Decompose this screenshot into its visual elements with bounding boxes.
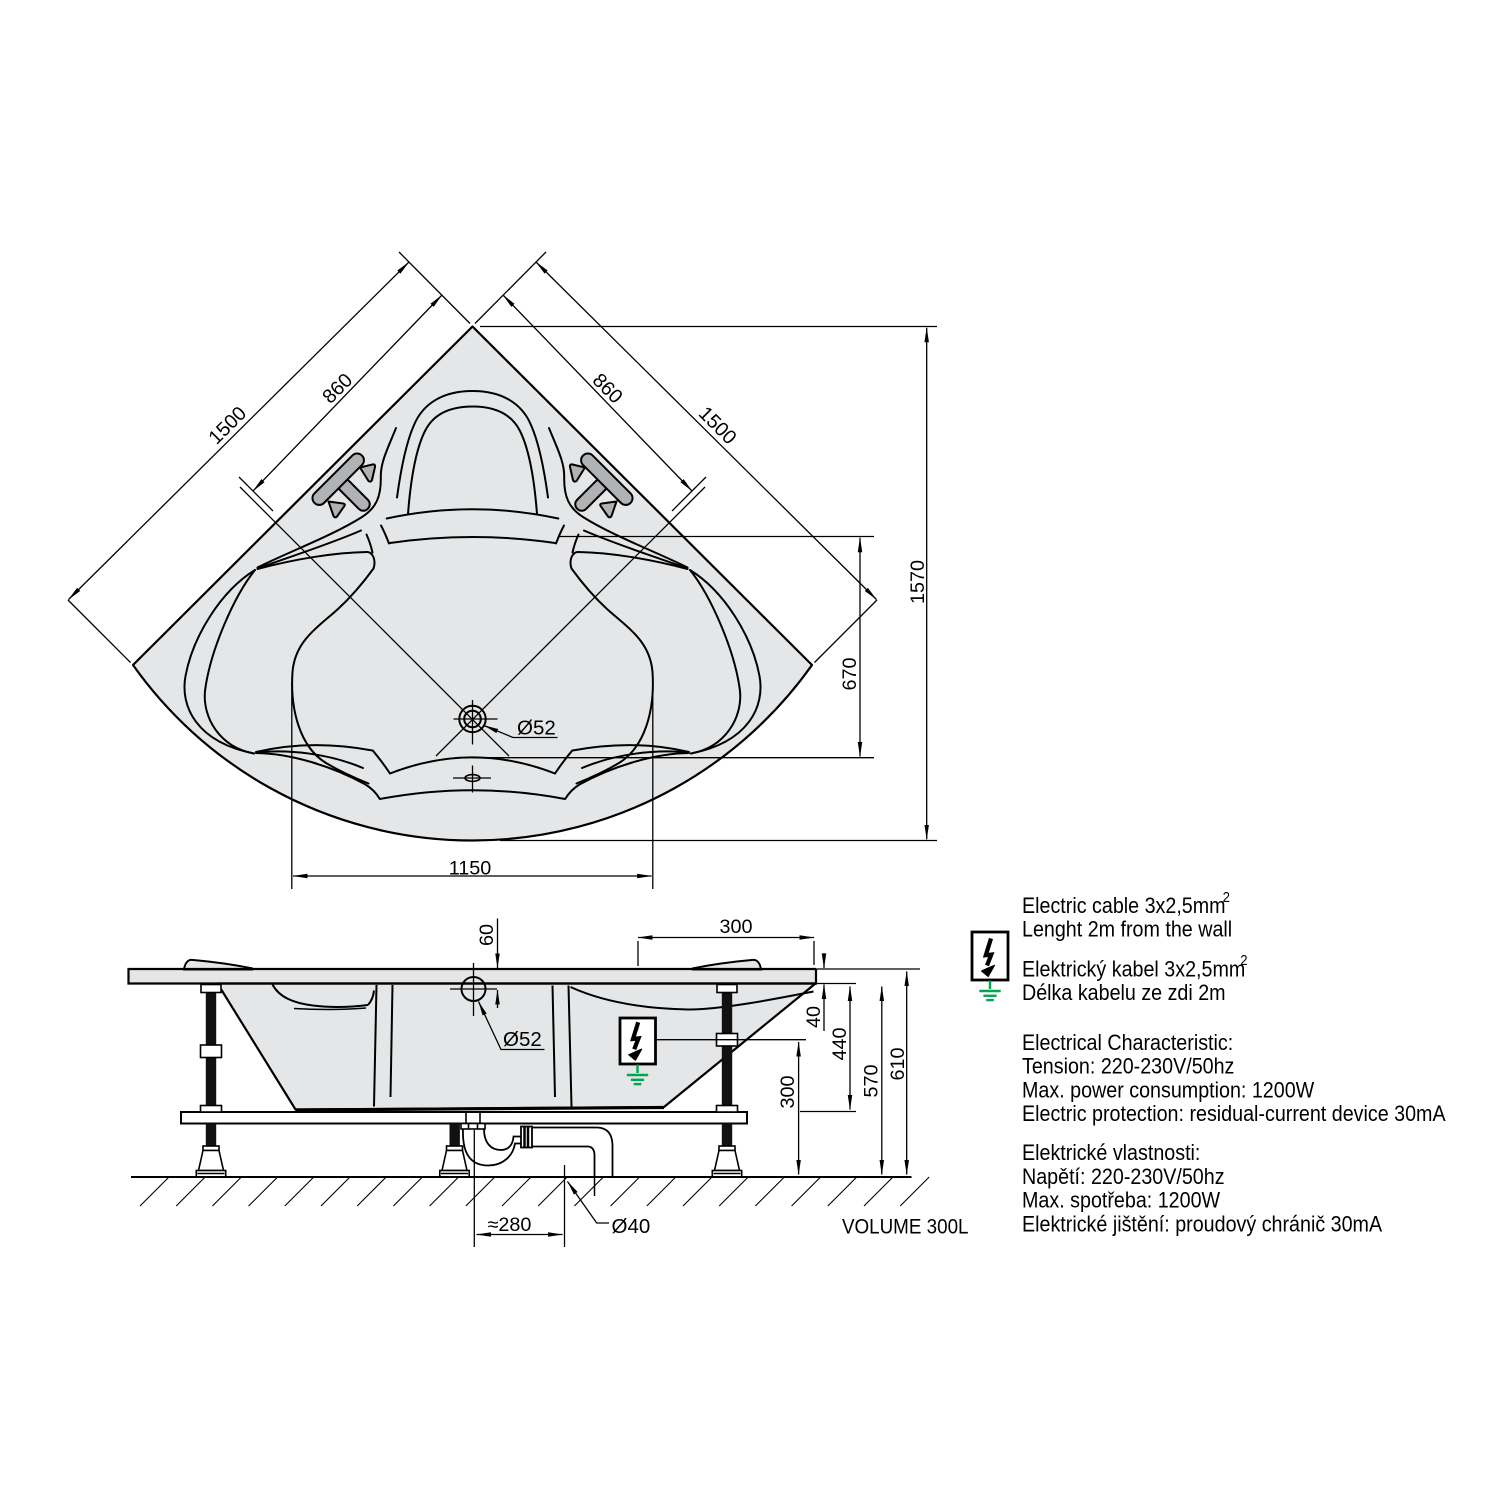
svg-text:60: 60 — [476, 924, 498, 946]
svg-text:Napětí: 220-230V/50hz: Napětí: 220-230V/50hz — [1022, 1165, 1225, 1189]
svg-text:860: 860 — [318, 369, 357, 408]
svg-text:2: 2 — [1223, 888, 1230, 905]
svg-text:Electrical Characteristic:: Electrical Characteristic: — [1022, 1031, 1233, 1055]
svg-text:Elektrické jištění: proudový c: Elektrické jištění: proudový chránič 30m… — [1022, 1212, 1383, 1236]
svg-text:Lenght 2m from the wall: Lenght 2m from the wall — [1022, 917, 1232, 941]
svg-text:Elektrické vlastnosti:: Elektrické vlastnosti: — [1022, 1141, 1200, 1165]
svg-text:Délka kabelu ze zdi 2m: Délka kabelu ze zdi 2m — [1022, 981, 1226, 1005]
svg-text:Electric cable 3x2,5mm: Electric cable 3x2,5mm — [1022, 894, 1226, 918]
svg-text:2: 2 — [1240, 951, 1247, 968]
svg-text:Electric protection: residual-: Electric protection: residual-current de… — [1022, 1102, 1446, 1126]
svg-text:570: 570 — [861, 1064, 883, 1097]
svg-text:300: 300 — [719, 916, 752, 938]
svg-text:1150: 1150 — [449, 858, 492, 880]
svg-text:Ø40: Ø40 — [612, 1215, 651, 1238]
svg-text:≈280: ≈280 — [488, 1214, 532, 1236]
svg-text:Elektrický kabel 3x2,5mm: Elektrický kabel 3x2,5mm — [1022, 957, 1245, 981]
svg-text:670: 670 — [839, 657, 861, 690]
svg-text:Ø52: Ø52 — [517, 717, 556, 740]
svg-text:440: 440 — [829, 1027, 851, 1060]
svg-text:860: 860 — [588, 369, 627, 408]
svg-text:Tension: 220-230V/50hz: Tension: 220-230V/50hz — [1022, 1054, 1234, 1078]
svg-text:610: 610 — [887, 1047, 909, 1080]
svg-text:VOLUME 300L: VOLUME 300L — [842, 1215, 969, 1238]
svg-text:Max. power consumption: 1200W: Max. power consumption: 1200W — [1022, 1078, 1314, 1102]
svg-text:Ø52: Ø52 — [503, 1028, 542, 1051]
svg-text:300: 300 — [777, 1075, 799, 1108]
svg-text:40: 40 — [803, 1006, 825, 1028]
svg-text:1570: 1570 — [907, 560, 929, 604]
svg-text:Max. spotřeba: 1200W: Max. spotřeba: 1200W — [1022, 1189, 1220, 1213]
